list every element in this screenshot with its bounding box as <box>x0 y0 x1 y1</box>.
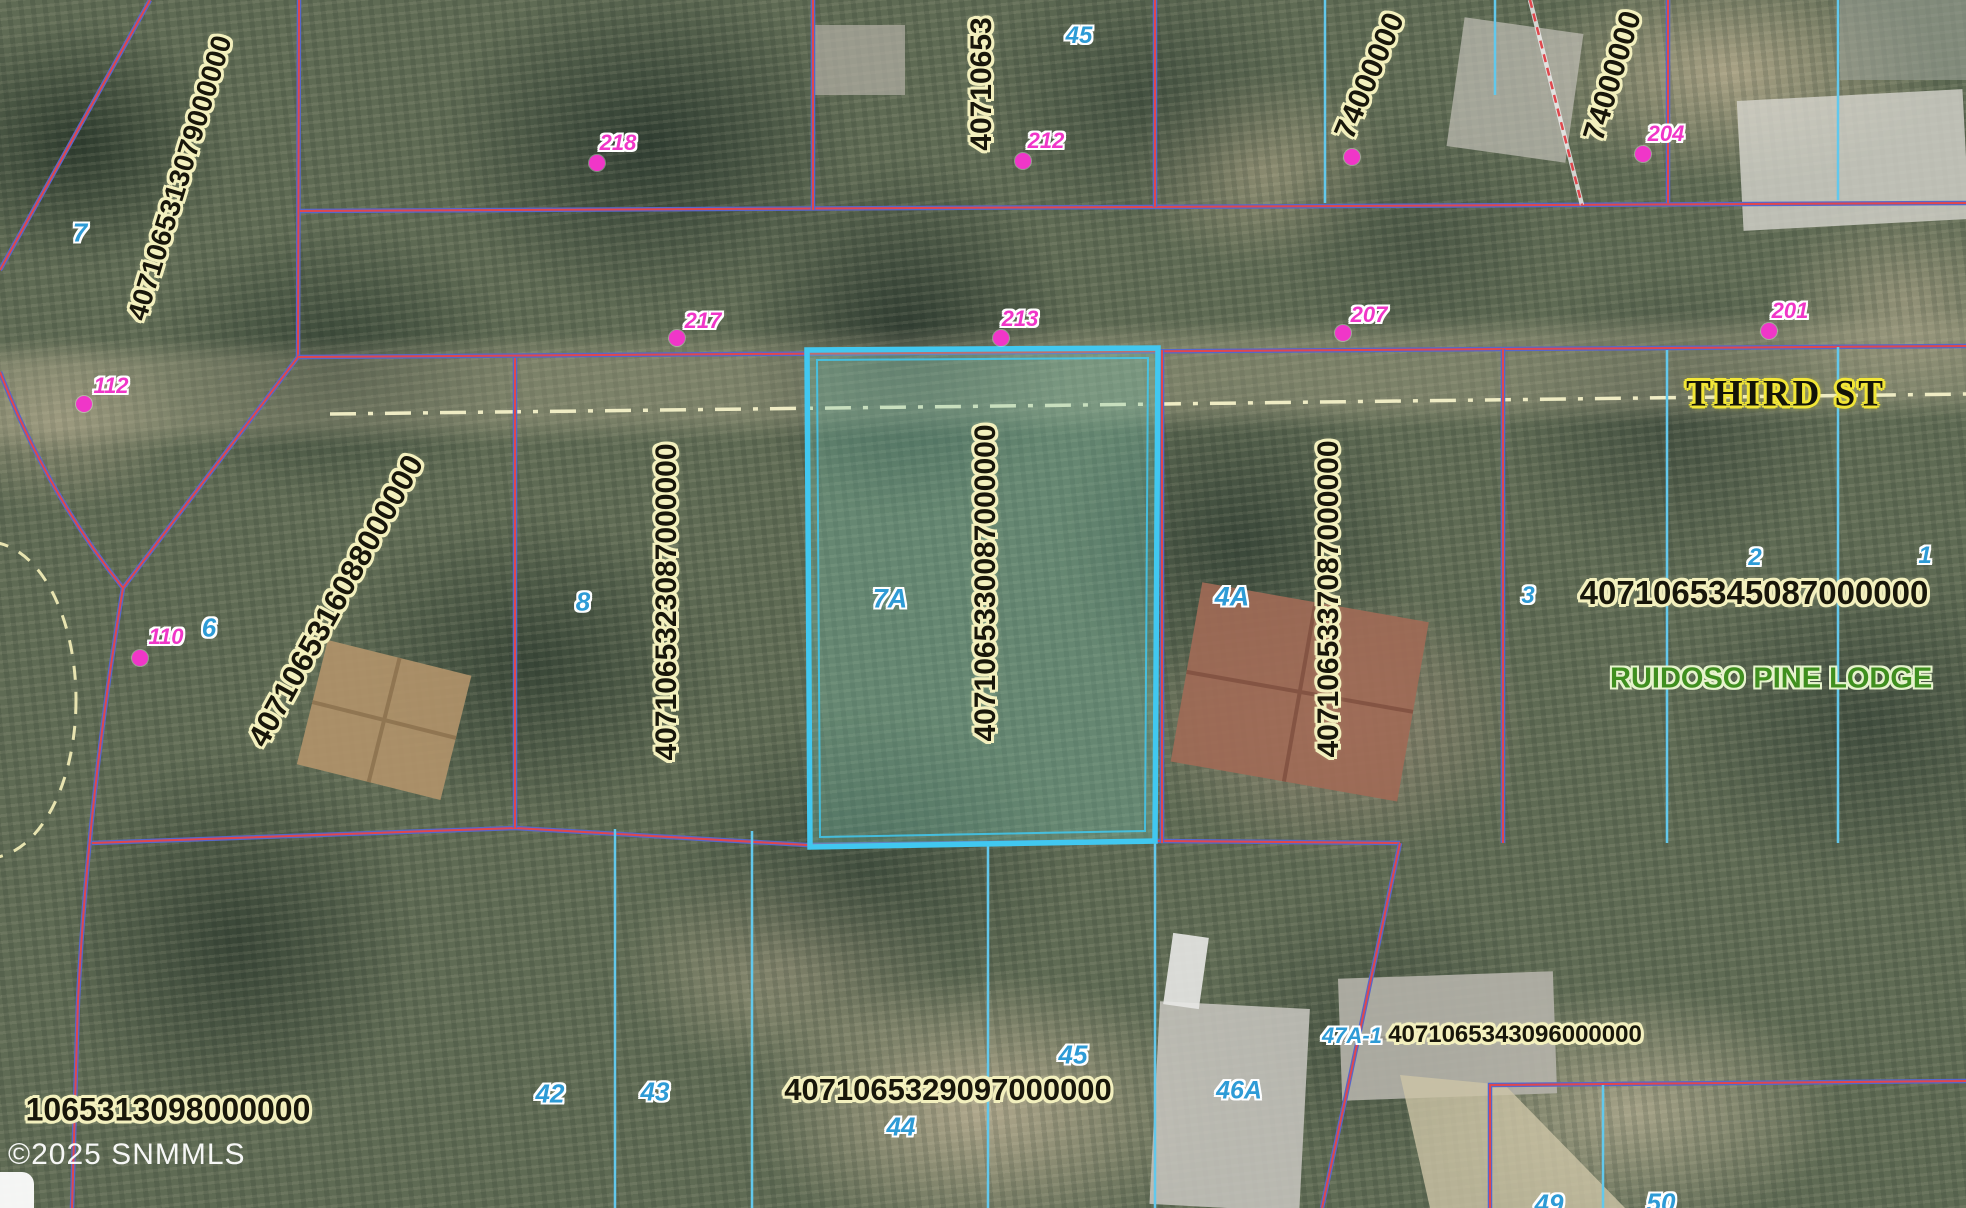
lot-number-label: 49 <box>1535 1189 1564 1208</box>
lot-number-label: 1 <box>1918 542 1931 570</box>
address-label: 201 <box>1772 298 1809 324</box>
parcel-id-label: 40710653 <box>965 17 999 150</box>
address-label: 213 <box>1002 306 1039 332</box>
address-dot <box>993 330 1009 346</box>
lot-number-label: 8 <box>576 587 590 618</box>
labels-layer: THIRD ST RUIDOSO PINE LODGE ©2025 SNMMLS… <box>0 0 1966 1208</box>
address-label: 207 <box>1351 302 1388 328</box>
parcel-id-label: 4071065316088000000 <box>241 449 431 753</box>
address-dot <box>1335 325 1351 341</box>
address-label: 110 <box>148 624 183 650</box>
lot-number-label: 47A-1 <box>1322 1023 1382 1049</box>
address-label: 112 <box>93 373 128 399</box>
lot-number-label: 45 <box>1066 22 1093 50</box>
lot-number-label: 50 <box>1647 1188 1676 1208</box>
parcel-id-label: 1065313098000000 <box>26 1092 311 1129</box>
address-dot <box>1015 153 1031 169</box>
address-dot <box>132 650 148 666</box>
parcel-id-label: 4071065313079000000 <box>121 32 238 324</box>
lot-number-label: 3 <box>1521 582 1534 610</box>
street-label: THIRD ST <box>1686 373 1886 416</box>
parcel-id-label: 4071065329097000000 <box>784 1072 1112 1108</box>
address-dot <box>669 330 685 346</box>
parcel-id-label: 4071065343096000000 <box>1388 1021 1642 1049</box>
lot-number-label: 46A <box>1216 1077 1262 1106</box>
subdivision-label: RUIDOSO PINE LODGE <box>1610 663 1932 696</box>
parcel-id-label: 4071065345087000000 <box>1580 574 1929 612</box>
address-label: 212 <box>1028 128 1065 154</box>
lot-number-label: 7 <box>73 218 87 249</box>
parcel-id-label: 4071065330087000000 <box>969 424 1003 741</box>
lot-number-label: 6 <box>202 613 216 644</box>
parcel-id-label: 4071065323087000000 <box>650 443 684 760</box>
lot-number-label: 7A <box>873 584 908 615</box>
address-dot <box>1635 146 1651 162</box>
map-corner-tab <box>0 1172 34 1208</box>
parcel-id-label: 74000000 <box>1328 8 1411 144</box>
lot-number-label: 2 <box>1748 544 1761 572</box>
address-dot <box>589 155 605 171</box>
parcel-id-label: 74000000 <box>1577 7 1649 145</box>
lot-number-label: 44 <box>887 1112 916 1143</box>
address-label: 218 <box>600 130 637 156</box>
address-label: 217 <box>685 308 722 334</box>
address-dot <box>1761 323 1777 339</box>
lot-number-label: 45 <box>1059 1040 1088 1071</box>
lot-number-label: 4A <box>1215 582 1250 613</box>
parcel-map[interactable]: THIRD ST RUIDOSO PINE LODGE ©2025 SNMMLS… <box>0 0 1966 1208</box>
address-dot <box>76 396 92 412</box>
lot-number-label: 42 <box>536 1079 565 1110</box>
address-dot <box>1344 149 1360 165</box>
lot-number-label: 43 <box>641 1077 670 1108</box>
address-label: 204 <box>1648 121 1685 147</box>
parcel-id-label: 4071065337087000000 <box>1312 440 1346 757</box>
copyright-watermark: ©2025 SNMMLS <box>8 1138 246 1172</box>
